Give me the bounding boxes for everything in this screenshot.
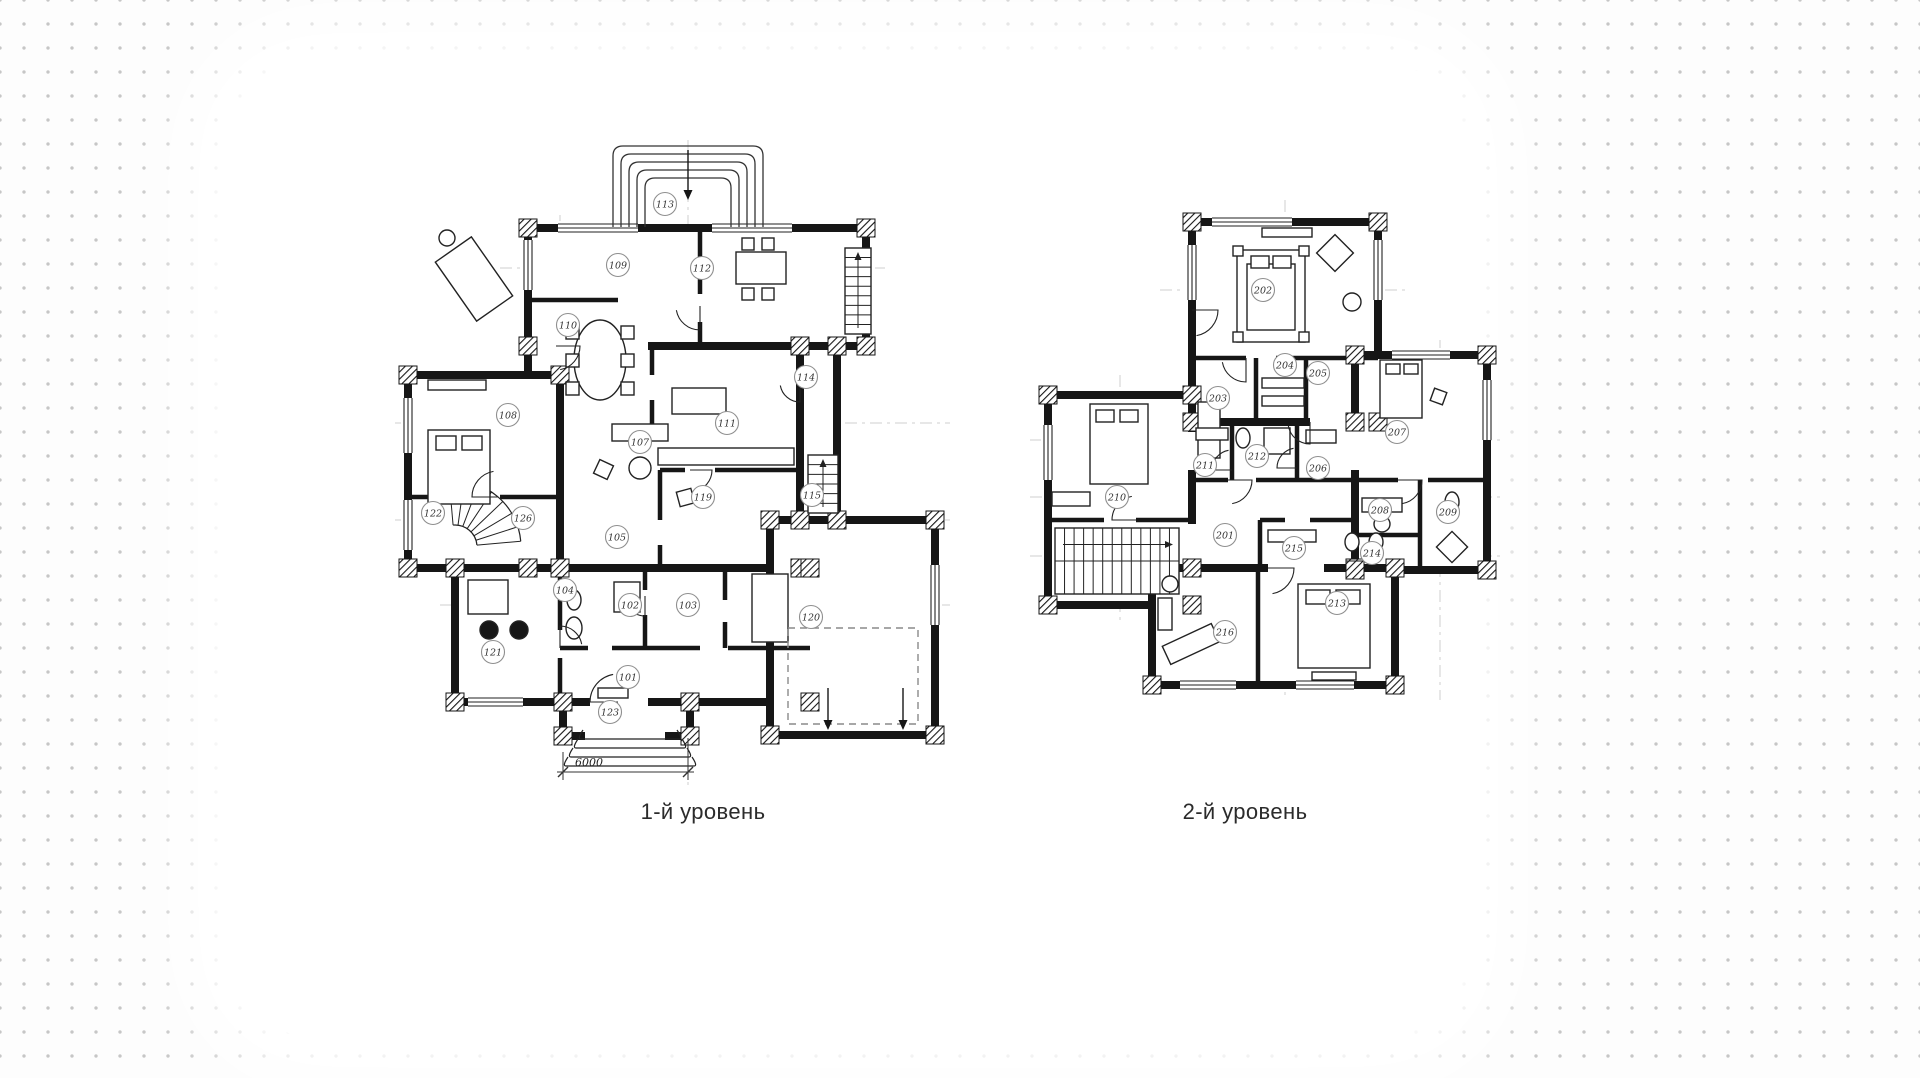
hatched-pier [1386, 559, 1404, 577]
furniture [1345, 533, 1359, 551]
hatched-pier [1183, 596, 1201, 614]
furniture [1343, 293, 1361, 311]
furniture [1233, 246, 1243, 256]
furniture [629, 457, 651, 479]
room-number-209: 209 [1438, 508, 1457, 519]
room-number-108: 108 [499, 411, 517, 422]
wall-opening [585, 729, 665, 743]
room-number-206: 206 [1308, 464, 1327, 475]
furniture [1386, 364, 1400, 374]
hatched-pier [1369, 213, 1387, 231]
hatched-pier [1346, 413, 1364, 431]
room-number-203: 203 [1208, 394, 1227, 405]
hatched-pier [828, 337, 846, 355]
hatched-pier [801, 693, 819, 711]
room-number-111: 111 [718, 419, 736, 430]
hatched-pier [926, 726, 944, 744]
furniture [621, 326, 634, 339]
furniture [1096, 410, 1114, 422]
room-number-121: 121 [484, 648, 502, 659]
plan-level-2: 2012022032042052062072082092102112122132… [1030, 200, 1505, 700]
furniture [428, 380, 486, 390]
furniture [436, 436, 456, 450]
furniture [1196, 428, 1228, 440]
hatched-pier [761, 511, 779, 529]
room-number-210: 210 [1107, 493, 1126, 504]
room-number-216: 216 [1215, 628, 1234, 639]
furniture [1404, 364, 1418, 374]
room-number-207: 207 [1387, 428, 1407, 439]
level-1-label: 1-й уровень [641, 799, 766, 825]
furniture [1236, 428, 1250, 448]
room-number-120: 120 [802, 613, 820, 624]
furniture [762, 288, 774, 300]
room-number-122: 122 [424, 509, 442, 520]
furniture [462, 436, 482, 450]
hatched-pier [1183, 386, 1201, 404]
room-number-113: 113 [656, 200, 674, 211]
room-number-205: 205 [1308, 369, 1327, 380]
hatched-pier [554, 727, 572, 745]
hatched-pier [791, 337, 809, 355]
room-number-123: 123 [601, 708, 619, 719]
hatched-pier [1478, 346, 1496, 364]
room-number-110: 110 [559, 321, 577, 332]
room-number-214: 214 [1362, 549, 1381, 560]
furniture [566, 382, 579, 395]
room-number-213: 213 [1327, 599, 1346, 610]
furniture [1251, 256, 1269, 268]
room-number-208: 208 [1370, 506, 1389, 517]
hatched-pier [1039, 596, 1057, 614]
furniture [510, 621, 528, 639]
hatched-pier [681, 693, 699, 711]
room-number-215: 215 [1284, 544, 1303, 555]
room-number-204: 204 [1275, 361, 1294, 372]
room-number-119: 119 [694, 493, 712, 504]
furniture [1299, 332, 1309, 342]
hatched-pier [446, 693, 464, 711]
room-number-105: 105 [608, 533, 626, 544]
furniture [435, 237, 512, 321]
room-number-202: 202 [1253, 286, 1272, 297]
furniture [1052, 492, 1090, 506]
hatched-pier [926, 511, 944, 529]
furniture [468, 580, 508, 614]
hatched-pier [1386, 676, 1404, 694]
hatched-pier [828, 511, 846, 529]
hatched-pier [1346, 346, 1364, 364]
furniture [1158, 598, 1172, 630]
floorplan-page: 6000101102103104105107108109110111112113… [0, 0, 1920, 1078]
furniture [1299, 246, 1309, 256]
furniture [1120, 410, 1138, 422]
room-number-102: 102 [621, 601, 639, 612]
hatched-pier [857, 337, 875, 355]
hatched-pier [551, 559, 569, 577]
furniture [621, 382, 634, 395]
room-number-212: 212 [1247, 452, 1266, 463]
hatched-pier [1346, 561, 1364, 579]
furniture [1264, 428, 1290, 454]
room-number-211: 211 [1195, 461, 1214, 472]
furniture [742, 238, 754, 250]
hatched-pier [761, 726, 779, 744]
furniture [1273, 256, 1291, 268]
hatched-pier [519, 337, 537, 355]
hatched-pier [1183, 213, 1201, 231]
hatched-pier [551, 366, 569, 384]
hatched-pier [1143, 676, 1161, 694]
hatched-pier [1183, 559, 1201, 577]
level-2-label: 2-й уровень [1183, 799, 1308, 825]
room-number-112: 112 [693, 264, 711, 275]
furniture [1312, 672, 1356, 680]
room-number-114: 114 [797, 373, 815, 384]
furniture [1162, 576, 1178, 592]
furniture [598, 688, 628, 698]
plan-level-1: 6000101102103104105107108109110111112113… [395, 140, 950, 785]
furniture [1262, 378, 1304, 388]
furniture [439, 230, 455, 246]
furniture [480, 621, 498, 639]
furniture [752, 574, 788, 642]
hatched-pier [554, 693, 572, 711]
hatched-pier [791, 511, 809, 529]
furniture [762, 238, 774, 250]
wall-opening [1185, 524, 1199, 560]
room-number-126: 126 [514, 514, 532, 525]
room-number-115: 115 [803, 491, 821, 502]
wall-opening [1348, 426, 1362, 470]
hatched-pier [1478, 561, 1496, 579]
furniture [1262, 228, 1312, 237]
hatched-pier [446, 559, 464, 577]
hatched-pier [399, 559, 417, 577]
room-number-104: 104 [556, 586, 574, 597]
room-number-103: 103 [679, 601, 697, 612]
room-number-107: 107 [631, 438, 650, 449]
floorplans-drawing: 6000101102103104105107108109110111112113… [0, 0, 1920, 1078]
hatched-pier [801, 559, 819, 577]
hatched-pier [1039, 386, 1057, 404]
furniture [672, 388, 726, 414]
hatched-pier [519, 559, 537, 577]
furniture [658, 448, 794, 465]
room-number-101: 101 [619, 673, 637, 684]
room-number-201: 201 [1215, 531, 1234, 542]
room-number-109: 109 [609, 261, 627, 272]
furniture [1262, 396, 1304, 406]
furniture [621, 354, 634, 367]
arrow-head [684, 190, 693, 200]
furniture [736, 252, 786, 284]
furniture [566, 354, 579, 367]
hatched-pier [857, 219, 875, 237]
furniture [742, 288, 754, 300]
hatched-pier [399, 366, 417, 384]
dimension-text: 6000 [575, 756, 603, 769]
furniture [574, 320, 626, 400]
furniture [1233, 332, 1243, 342]
hatched-pier [519, 219, 537, 237]
